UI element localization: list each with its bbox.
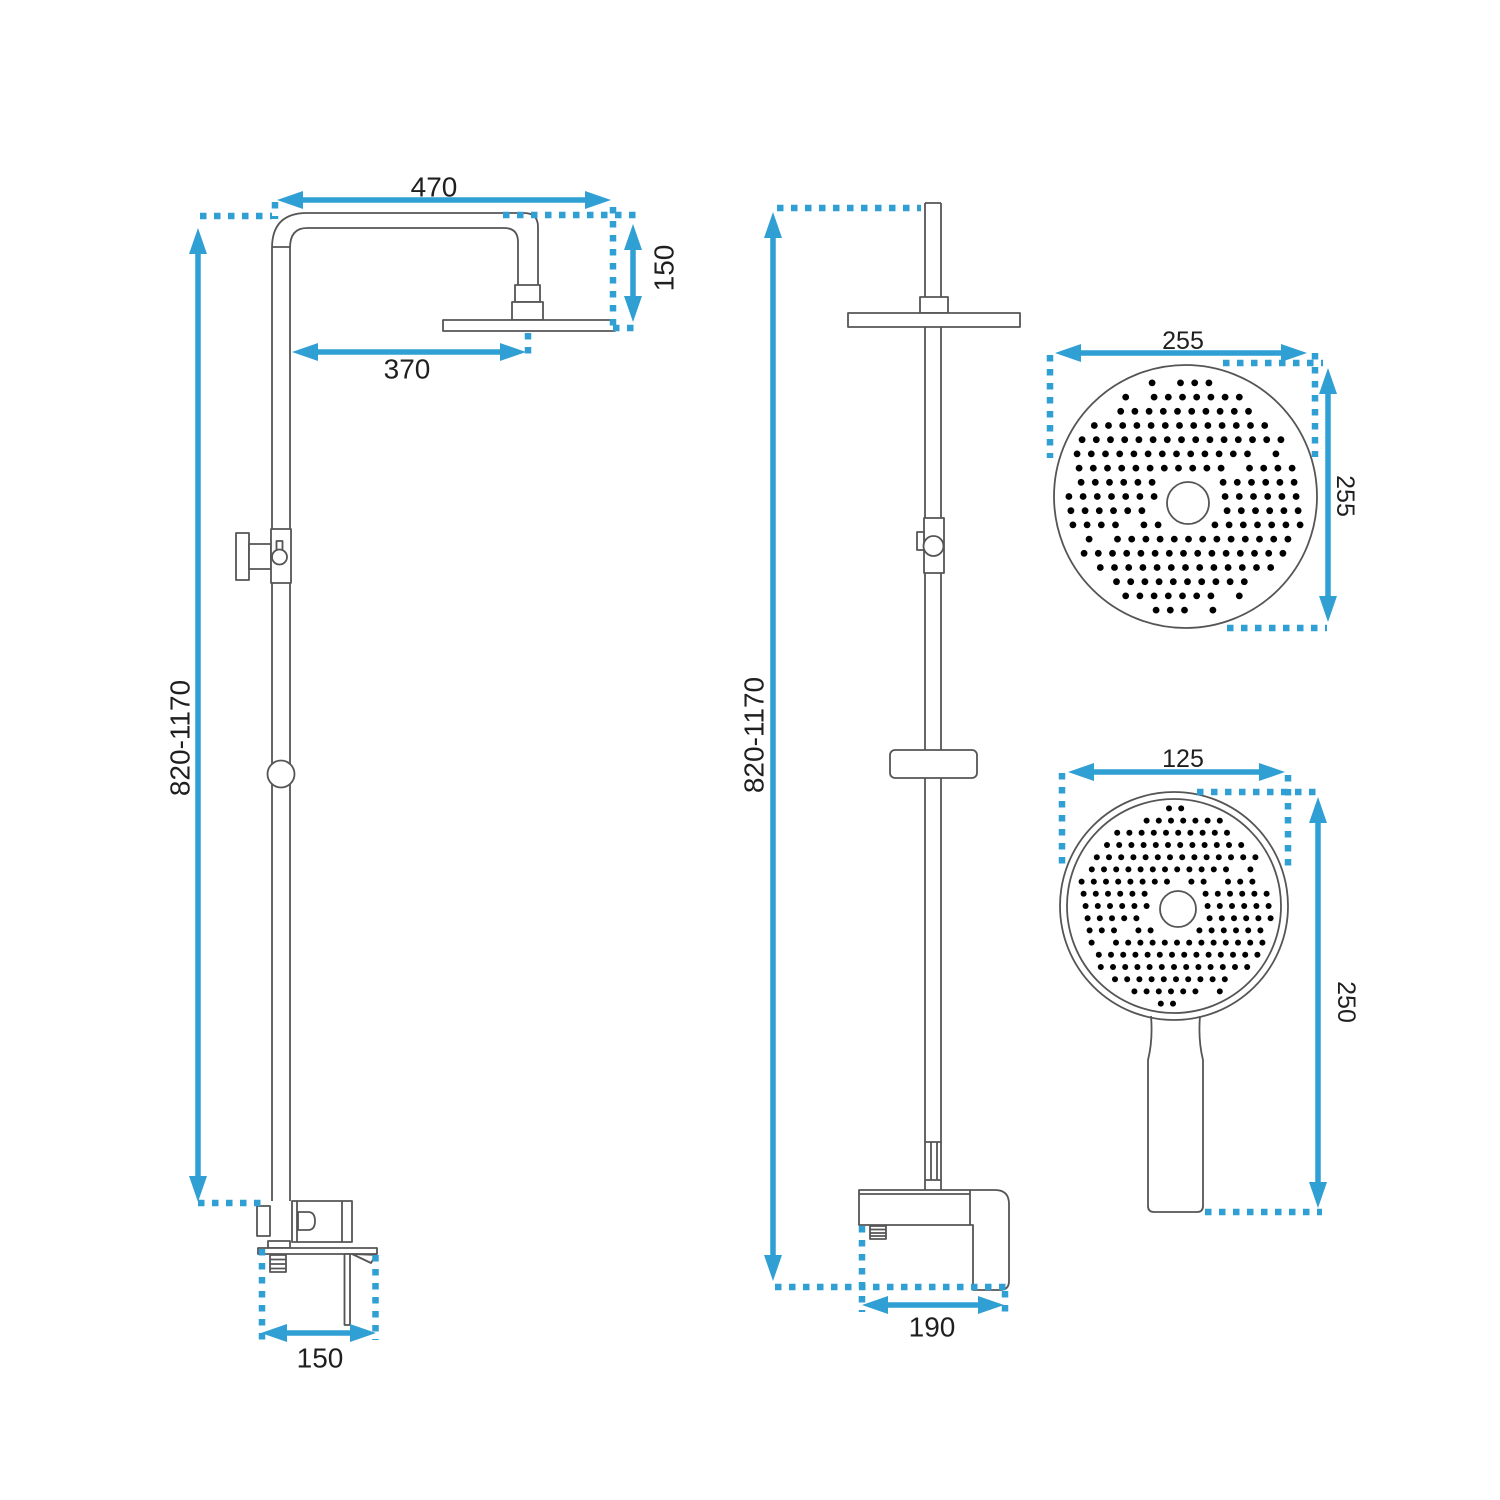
side-shower-plate [848, 313, 1020, 327]
mixer-collar [268, 1241, 290, 1248]
front-top-width-label: 470 [411, 172, 458, 203]
front-head-reach-label: 370 [384, 354, 431, 385]
overhead-height-label: 255 [1331, 475, 1359, 517]
side-column-height-label: 820-1170 [739, 677, 770, 793]
overhead-face [1054, 365, 1317, 628]
mixer-body [292, 1201, 352, 1242]
mixer-shelf [258, 1248, 377, 1254]
soap-dish [890, 750, 977, 778]
riser-connector [268, 761, 295, 788]
front-base-width-label: 150 [297, 1343, 344, 1374]
hose-fitting [925, 1142, 941, 1180]
side-head-connector [920, 297, 948, 313]
side-view [848, 203, 1020, 1290]
hand-width-label: 125 [1162, 745, 1204, 773]
wall-bracket-plate [236, 533, 249, 580]
shower-set-technical-drawing: 470 150 370 820-1170 150 820-1170 190 25… [0, 0, 1500, 1500]
hand-center-hole [1160, 891, 1196, 927]
head-collar-upper [515, 285, 540, 302]
front-column-height-label: 820-1170 [165, 680, 196, 796]
hand-height-label: 250 [1332, 981, 1360, 1023]
overhead-shower-detail [1054, 365, 1317, 628]
side-mixer-body [859, 1190, 1009, 1290]
overhead-width-label: 255 [1162, 327, 1204, 355]
mixer-cap [257, 1206, 270, 1236]
overhead-shower-plate [443, 320, 615, 331]
hand-handle [1148, 1016, 1203, 1212]
front-head-drop-label: 150 [649, 245, 680, 292]
side-riser-pipe [925, 203, 941, 1190]
overhead-center-hole [1167, 482, 1209, 524]
hand-shower-detail [1060, 792, 1288, 1212]
wall-bracket-arm [249, 544, 271, 569]
mixer-handle-bar [345, 1254, 351, 1325]
head-collar-lower [512, 302, 543, 320]
slider-knob [272, 550, 287, 565]
overhead-spray-nozzles [1066, 380, 1304, 614]
side-slider-knob [924, 536, 944, 556]
side-mixer-depth-label: 190 [909, 1312, 956, 1343]
hand-spray-nozzles [1079, 805, 1274, 1006]
